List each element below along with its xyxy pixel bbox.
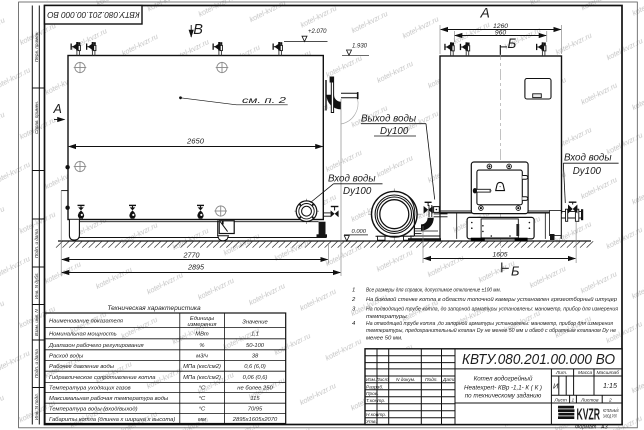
svg-text:KVZR: KVZR — [577, 406, 601, 423]
svg-text:Значение: Значение — [242, 320, 268, 326]
svg-text:1:15: 1:15 — [603, 381, 618, 390]
svg-text:Листов: Листов — [580, 397, 599, 403]
svg-text:МВт: МВт — [195, 332, 209, 338]
svg-text:50-100: 50-100 — [246, 343, 265, 349]
svg-text:Dy100: Dy100 — [380, 126, 409, 137]
svg-text:И: И — [553, 382, 559, 391]
svg-text:Heatexpert- КВр -1,1- К ( К ): Heatexpert- КВр -1,1- К ( К ) — [464, 384, 542, 391]
svg-text:Температура воды (вход/выход): Температура воды (вход/выход) — [49, 407, 138, 413]
svg-text:2895х1605х2070: 2895х1605х2070 — [232, 417, 278, 423]
svg-text:N докум.: N докум. — [396, 377, 415, 383]
svg-text:1,1: 1,1 — [251, 332, 259, 338]
svg-text:А: А — [53, 102, 62, 116]
svg-text:Перв. примен.: Перв. примен. — [34, 31, 39, 62]
svg-text:Рабочее давление воды: Рабочее давление воды — [49, 364, 115, 370]
svg-text:Диапазон рабочего регулировани: Диапазон рабочего регулирования — [48, 343, 144, 349]
svg-text:Dy100: Dy100 — [343, 186, 372, 197]
svg-text:960: 960 — [495, 30, 507, 37]
svg-text:2: 2 — [608, 397, 612, 403]
svg-text:см. п. 2: см. п. 2 — [242, 95, 286, 105]
svg-text:Наименование показателя: Наименование показателя — [49, 319, 123, 325]
svg-text:Максимальная рабочая температу: Максимальная рабочая температура воды — [49, 396, 169, 402]
svg-text:+2.070: +2.070 — [308, 29, 327, 35]
svg-text:Температура уходящих газов: Температура уходящих газов — [49, 385, 131, 391]
svg-text:Пров.: Пров. — [366, 391, 379, 397]
svg-text:Б: Б — [511, 264, 520, 279]
svg-text:мм: мм — [198, 417, 206, 423]
svg-text:Формат: Формат — [575, 424, 597, 430]
svg-text:Дата: Дата — [442, 377, 456, 383]
svg-text:Расход воды: Расход воды — [49, 354, 84, 360]
svg-text:А: А — [480, 4, 490, 20]
svg-text:ЗАВОД РЭП: ЗАВОД РЭП — [603, 413, 617, 418]
svg-text:2770: 2770 — [183, 250, 200, 259]
svg-text:Все размеры для справок, допус: Все размеры для справок, допустимое откл… — [366, 288, 501, 294]
svg-text:На боковой стенке котла в обла: На боковой стенке котла в области топочн… — [366, 296, 618, 303]
svg-text:°С: °С — [199, 407, 206, 413]
svg-text:Масштаб: Масштаб — [597, 370, 620, 376]
svg-text:2: 2 — [351, 297, 356, 303]
svg-text:КВТУ.080.201.00.000 ВО: КВТУ.080.201.00.000 ВО — [462, 352, 615, 368]
svg-text:Котел водогрейный: Котел водогрейный — [474, 376, 533, 383]
svg-text:Вход воды: Вход воды — [564, 153, 612, 164]
svg-text:Единицы: Единицы — [190, 316, 215, 322]
svg-text:КОТЕЛЬНЫЙ: КОТЕЛЬНЫЙ — [603, 408, 619, 413]
svg-text:2650: 2650 — [186, 137, 205, 146]
svg-text:Подп. и дата: Подп. и дата — [34, 349, 39, 378]
svg-text:измерения: измерения — [187, 322, 216, 328]
svg-text:На подводящей трубе котла, д: На подводящей трубе котла, до запорной а… — [366, 306, 619, 313]
svg-text:Инв. N дубл.: Инв. N дубл. — [34, 272, 39, 299]
svg-text:°С: °С — [199, 385, 206, 391]
svg-text:не более 250: не более 250 — [237, 385, 273, 391]
svg-text:1: 1 — [572, 397, 575, 403]
svg-text:МПа (кгс/см2): МПа (кгс/см2) — [183, 364, 221, 370]
svg-text:1605: 1605 — [492, 251, 507, 258]
svg-text:Лист: Лист — [554, 397, 567, 403]
svg-text:1: 1 — [352, 288, 355, 294]
svg-text:Т.контр.: Т.контр. — [366, 398, 385, 404]
svg-text:Гидравлическое сопротивление к: Гидравлическое сопротивление котла — [49, 375, 156, 381]
svg-text:Лит.: Лит. — [555, 370, 567, 376]
svg-text:А3: А3 — [600, 424, 608, 430]
svg-text:Справ. примен.: Справ. примен. — [34, 101, 39, 134]
svg-text:Габариты котла (длинна х ширин: Габариты котла (длинна х ширина х высота… — [49, 417, 175, 423]
svg-text:0,06 (0,6): 0,06 (0,6) — [243, 375, 268, 381]
svg-text:Н.контр.: Н.контр. — [366, 412, 386, 418]
svg-text:Подп.: Подп. — [425, 377, 438, 383]
svg-text:температуры.: температуры. — [366, 314, 408, 320]
svg-text:Разраб.: Разраб. — [366, 384, 383, 390]
svg-text:Взам. инв. N: Взам. инв. N — [34, 309, 39, 336]
svg-text:Масса: Масса — [578, 370, 593, 376]
svg-text:Подп. и дата: Подп. и дата — [34, 229, 39, 258]
svg-text:Вход воды: Вход воды — [328, 174, 376, 185]
svg-text:Dy100: Dy100 — [573, 166, 602, 177]
svg-text:Техническая характеристика: Техническая характеристика — [107, 305, 201, 312]
svg-text:Инв. N подл.: Инв. N подл. — [34, 393, 39, 420]
svg-text:менее 50 мм.: менее 50 мм. — [366, 335, 403, 341]
svg-text:Б: Б — [508, 36, 517, 51]
svg-text:На отводящей трубе котла ,до з: На отводящей трубе котла ,до запорной ар… — [366, 320, 614, 327]
svg-text:%: % — [199, 343, 204, 349]
svg-text:°С: °С — [199, 396, 206, 402]
svg-text:70/95: 70/95 — [248, 407, 263, 413]
svg-text:КВТУ.080.201.00.000 ВО: КВТУ.080.201.00.000 ВО — [47, 10, 140, 19]
svg-text:В: В — [193, 22, 203, 38]
svg-text:МПа (кгс/см2): МПа (кгс/см2) — [183, 375, 221, 381]
svg-text:Выход воды: Выход воды — [361, 113, 417, 124]
svg-text:0.000: 0.000 — [352, 229, 367, 235]
svg-text:Изм.Лист: Изм.Лист — [366, 377, 389, 383]
svg-text:Утв.: Утв. — [366, 419, 377, 425]
svg-text:м3/ч: м3/ч — [196, 354, 208, 360]
svg-text:температуры, предохранительный: температуры, предохранительный клапан Dу… — [366, 327, 617, 334]
svg-text:38: 38 — [252, 354, 259, 360]
svg-text:115: 115 — [250, 396, 260, 402]
svg-text:2895: 2895 — [187, 263, 205, 272]
svg-text:0,6 (6,0): 0,6 (6,0) — [244, 364, 266, 370]
svg-text:1.930: 1.930 — [352, 44, 368, 50]
svg-text:Номинальная мощность: Номинальная мощность — [49, 332, 117, 338]
svg-text:по техническому заданию: по техническому заданию — [465, 393, 542, 400]
